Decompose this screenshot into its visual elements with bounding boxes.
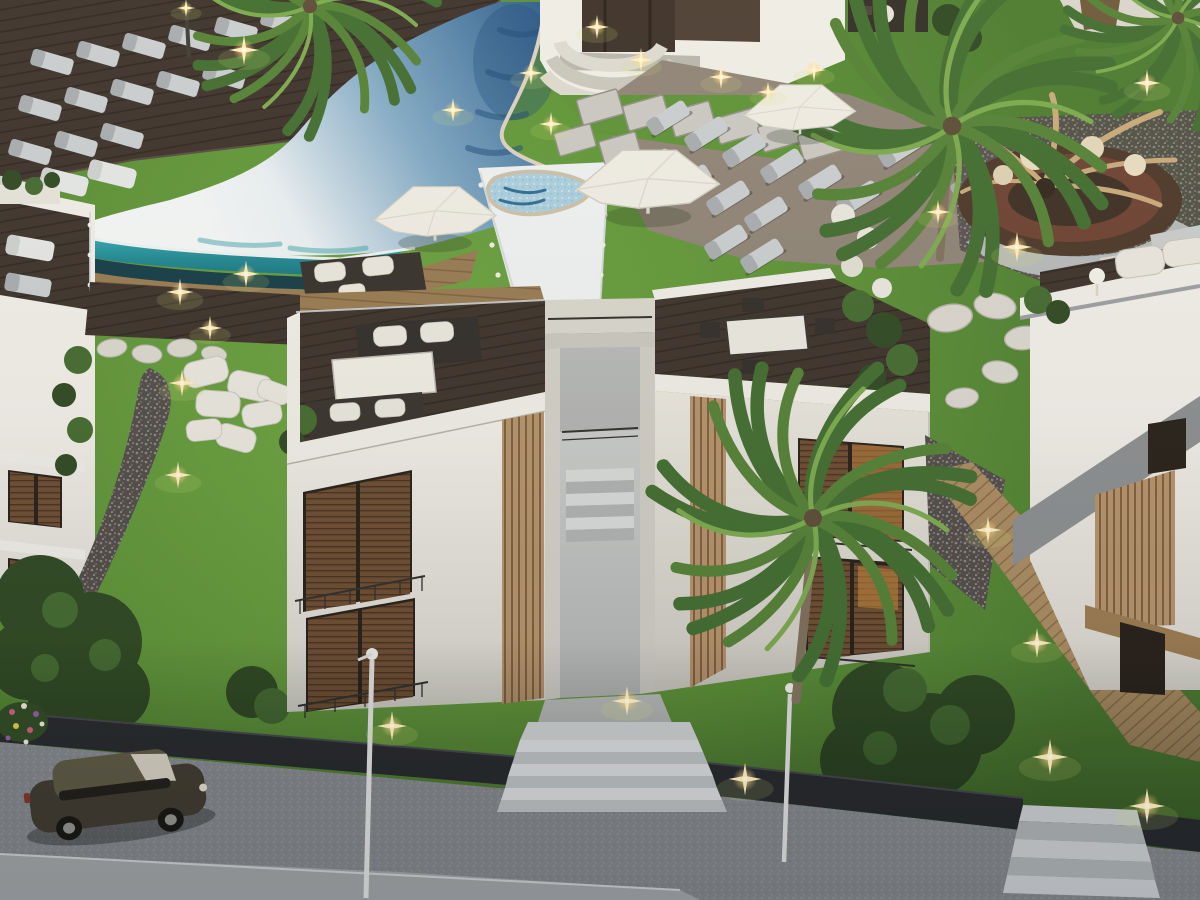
- architectural-render-image: Aerial dusk render of a resort apartment…: [0, 0, 1200, 900]
- resort-aerial-render: Aerial dusk render of a resort apartment…: [0, 0, 1200, 900]
- dusk-overlay: [0, 0, 1200, 900]
